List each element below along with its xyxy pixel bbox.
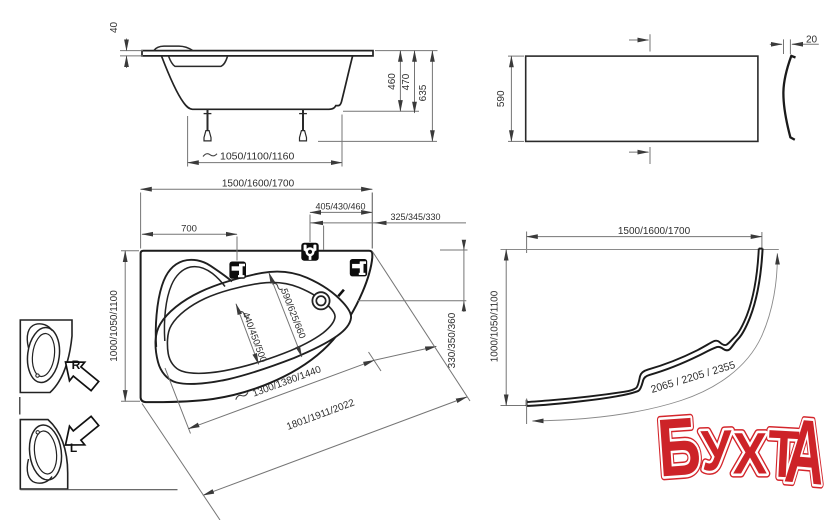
svg-text:У: У: [700, 419, 734, 483]
svg-text:40: 40: [109, 21, 120, 33]
svg-text:405/430/460: 405/430/460: [315, 202, 365, 212]
svg-text:700: 700: [181, 224, 197, 235]
svg-text:1000/1050/1100: 1000/1050/1100: [109, 290, 120, 362]
svg-text:1500/1600/1700: 1500/1600/1700: [618, 226, 691, 237]
svg-text:1500/1600/1700: 1500/1600/1700: [222, 179, 295, 190]
svg-text:20: 20: [806, 35, 818, 46]
svg-text:1000/1050/1100: 1000/1050/1100: [490, 290, 501, 362]
svg-text:1050/1100/1160: 1050/1100/1160: [220, 150, 295, 162]
svg-text:590: 590: [496, 90, 507, 107]
svg-text:R: R: [72, 358, 81, 372]
svg-text:L: L: [70, 441, 77, 455]
svg-text:Б: Б: [655, 400, 704, 495]
svg-text:Х: Х: [733, 421, 768, 486]
svg-text:330/350/360: 330/350/360: [447, 312, 458, 368]
svg-text:460: 460: [387, 73, 398, 90]
svg-text:635: 635: [418, 84, 429, 101]
svg-text:325/345/330: 325/345/330: [390, 212, 440, 222]
svg-text:470: 470: [401, 73, 412, 90]
